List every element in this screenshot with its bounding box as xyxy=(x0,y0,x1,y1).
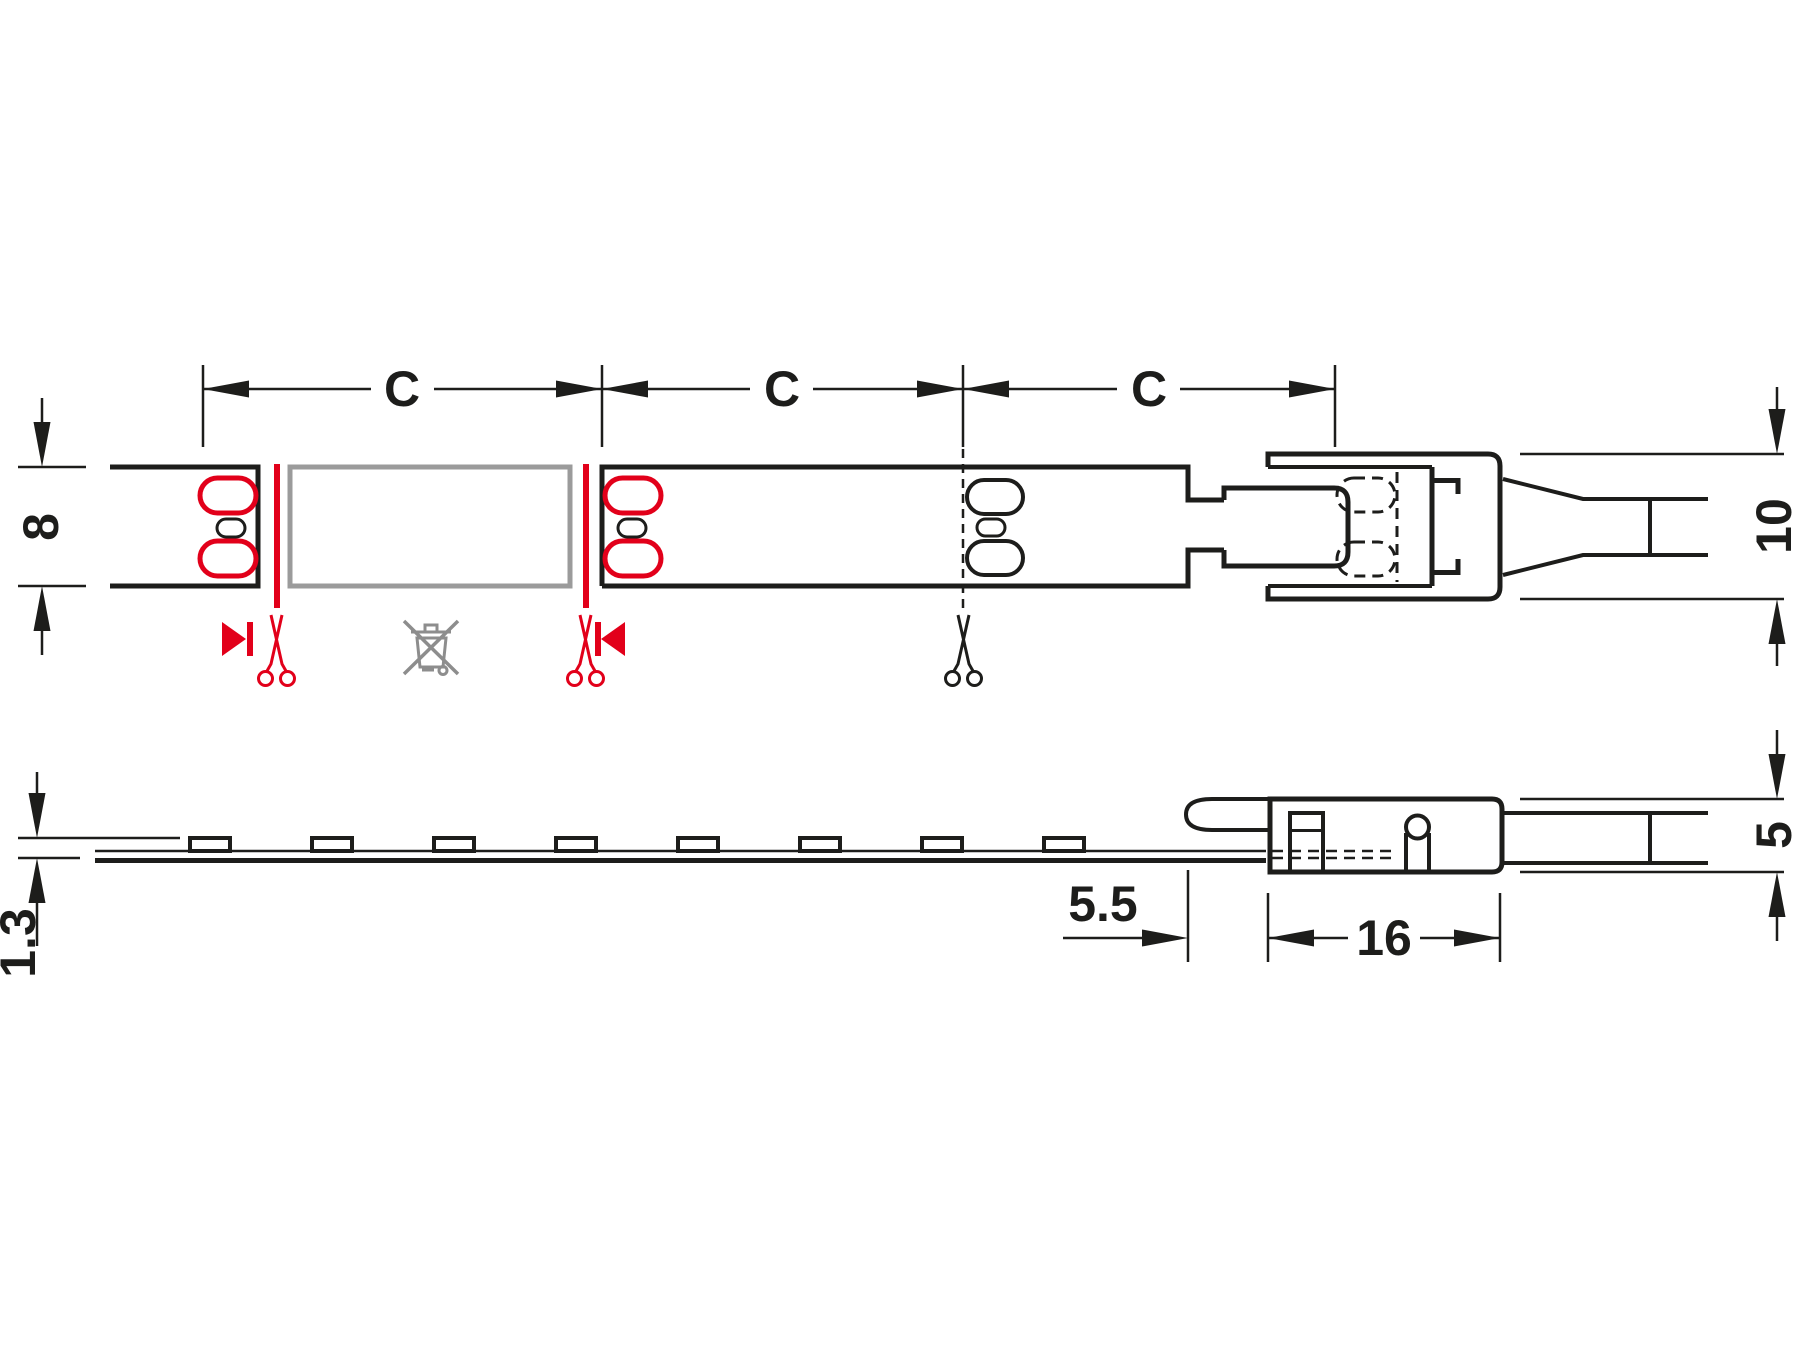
bin-lid xyxy=(411,625,451,632)
led-chip xyxy=(922,838,962,851)
arrowhead xyxy=(556,381,602,398)
scissors-ring xyxy=(281,672,295,686)
solder-pad xyxy=(200,541,256,576)
dimension-label-c3: C xyxy=(1131,361,1167,417)
connector-cable xyxy=(1503,813,1708,863)
waste-bin-icon xyxy=(404,621,458,675)
polarity-triangle-icon xyxy=(222,622,246,656)
scissors-ring xyxy=(946,672,960,686)
dim-connector-height: 5 xyxy=(1520,730,1800,941)
contact-pin xyxy=(1406,816,1429,839)
scissors-ring xyxy=(259,672,273,686)
solder-pad xyxy=(605,478,661,513)
dimension-label-strip-height: 1.3 xyxy=(0,908,46,978)
dimension-label-c2: C xyxy=(764,361,800,417)
led-chip xyxy=(556,838,596,851)
scissors-icon xyxy=(267,615,286,671)
center-pad xyxy=(217,519,245,537)
center-pad xyxy=(977,519,1005,536)
clip-connector-top-view xyxy=(1224,454,1708,599)
led-chip xyxy=(1044,838,1084,851)
led-strip-dimension-drawing: C C C 8 xyxy=(0,0,1800,1350)
solder-pad xyxy=(967,541,1023,575)
dim-connector-width: 10 xyxy=(1520,387,1800,666)
dim-cut-length: C C C xyxy=(203,361,1335,447)
center-pad xyxy=(618,519,646,537)
polarity-bar-icon xyxy=(595,622,601,656)
arrowhead xyxy=(1769,409,1786,454)
arrowhead xyxy=(1289,381,1335,398)
arrowhead xyxy=(34,422,51,467)
scissors-ring xyxy=(568,672,582,686)
arrowhead xyxy=(34,586,51,631)
arrowhead xyxy=(602,381,648,398)
solder-pad xyxy=(967,480,1023,514)
polarity-mark-right xyxy=(595,622,625,656)
scissors-ring xyxy=(968,672,982,686)
arrowhead xyxy=(963,381,1009,398)
discard-piece xyxy=(290,467,570,586)
scissors-ring xyxy=(590,672,604,686)
dimension-label-connector-inset: 5.5 xyxy=(1068,876,1138,932)
polarity-mark-left xyxy=(222,622,253,656)
dim-connector-length: 16 xyxy=(1268,893,1500,966)
latch-finger xyxy=(1186,799,1270,830)
connector-body xyxy=(1270,799,1502,872)
arrowhead xyxy=(1769,754,1786,799)
polarity-bar-icon xyxy=(247,622,253,656)
solder-pad xyxy=(605,541,661,576)
strip-segment-2-bottom xyxy=(602,550,1224,586)
contact-clamp xyxy=(1432,467,1458,586)
strip-cavity xyxy=(1224,488,1348,566)
scissors-red-left xyxy=(259,615,295,686)
connector-cable xyxy=(1503,479,1708,575)
bin-wheel xyxy=(439,667,447,675)
strip-profile xyxy=(95,838,1266,861)
led-chip xyxy=(800,838,840,851)
dimension-label-c1: C xyxy=(384,361,420,417)
arrowhead xyxy=(29,793,46,838)
led-chip xyxy=(434,838,474,851)
dimension-label-connector-height: 5 xyxy=(1746,821,1800,849)
led-chip xyxy=(678,838,718,851)
bin-body xyxy=(417,638,446,667)
dim-connector-inset: 5.5 xyxy=(1063,870,1188,962)
scissors-icon xyxy=(576,615,595,671)
scissors-icon xyxy=(954,615,973,671)
arrowhead xyxy=(1268,930,1314,947)
solder-pads-left-cut-end xyxy=(200,478,256,576)
dimension-label-connector-length: 16 xyxy=(1356,910,1412,966)
led-chip xyxy=(190,838,230,851)
led-chip xyxy=(312,838,352,851)
strip-segment-2-top xyxy=(602,467,1224,586)
solder-pads-mid xyxy=(967,480,1023,575)
dimension-label-strip-width: 8 xyxy=(13,513,69,541)
connector-housing xyxy=(1268,454,1500,599)
polarity-triangle-icon xyxy=(601,622,625,656)
dim-strip-height: 1.3 xyxy=(0,772,180,978)
dim-strip-width: 8 xyxy=(13,398,86,655)
arrowhead xyxy=(1769,599,1786,644)
arrowhead xyxy=(1769,872,1786,917)
clamp-block xyxy=(1290,813,1323,872)
arrowhead xyxy=(917,381,963,398)
solder-pads-segment-start xyxy=(605,478,661,576)
solder-pad xyxy=(200,478,256,513)
arrowhead xyxy=(29,858,46,903)
arrowhead xyxy=(1142,930,1188,947)
arrowhead xyxy=(203,381,249,398)
top-view: C C C 8 xyxy=(13,361,1800,686)
arrowhead xyxy=(1454,930,1500,947)
side-view: 1.3 xyxy=(0,730,1800,978)
dimension-label-connector-width: 10 xyxy=(1746,498,1800,554)
technical-drawing-page: C C C 8 xyxy=(0,0,1800,1350)
scissors-black-mid xyxy=(946,615,982,686)
